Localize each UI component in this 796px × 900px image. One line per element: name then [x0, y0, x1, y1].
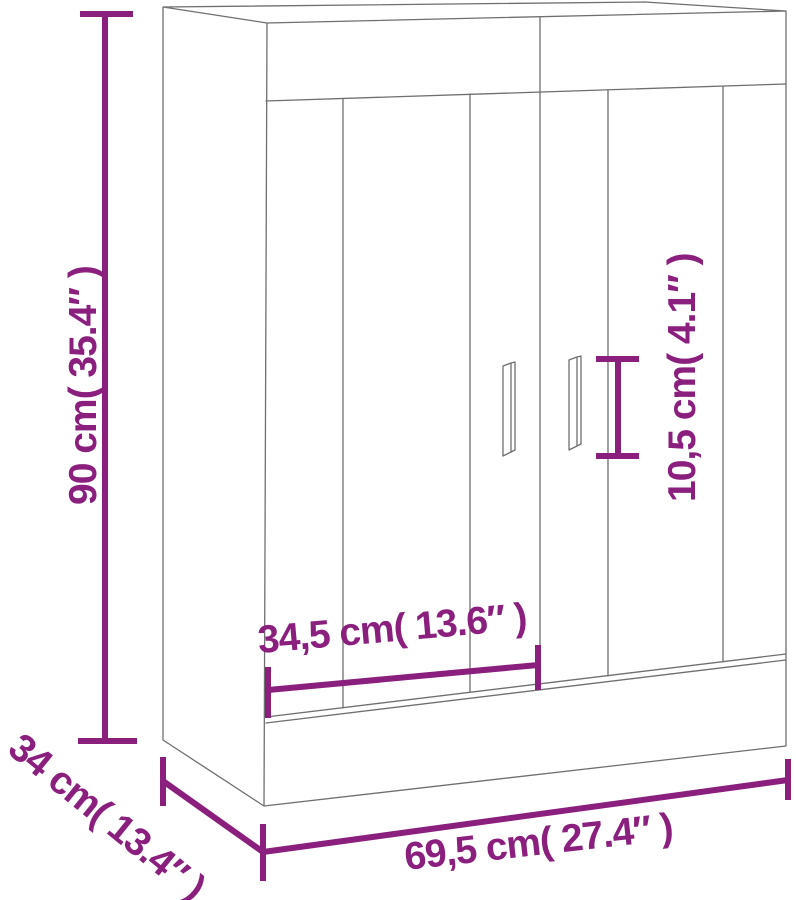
- depth-dimension-line: [163, 757, 263, 852]
- diagram-canvas: 90 cm( 35.4″ ) 34 cm( 13.4″ ) 69,5 cm( 2…: [0, 0, 796, 900]
- door-width-dimension-label: 34,5 cm( 13.6″ ): [256, 596, 528, 662]
- cabinet-dimension-diagram: 90 cm( 35.4″ ) 34 cm( 13.4″ ) 69,5 cm( 2…: [0, 0, 796, 900]
- right-door-handle: [569, 356, 581, 450]
- height-dimension-label: 90 cm( 35.4″ ): [62, 266, 105, 505]
- cabinet-top-rail-lines: [266, 17, 786, 101]
- handle-height-dimension-label: 10,5 cm( 4.1″ ): [661, 253, 704, 502]
- left-door-handle: [503, 362, 515, 456]
- handle-height-dimension-line: [596, 359, 639, 456]
